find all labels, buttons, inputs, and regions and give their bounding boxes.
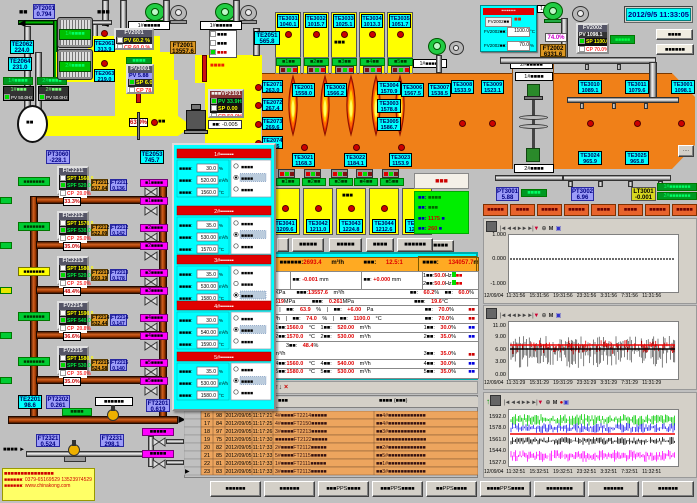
svg-text:22: 22 (204, 461, 210, 467)
svg-text:%: % (219, 166, 223, 171)
svg-text:■■■■: ■■■■ (241, 368, 253, 374)
svg-text:3#■■■■FT2113■■■■■: 3#■■■■FT2113■■■■■ (275, 469, 326, 475)
svg-text:540.00: 540.00 (201, 330, 217, 336)
svg-text:%: % (219, 369, 223, 374)
svg-text:35.0: 35.0 (206, 272, 216, 278)
svg-text:■■■■: ■■■■ (241, 271, 253, 277)
svg-text:2012/09/05: 2012/09/05 (226, 429, 252, 435)
svg-text:98: 98 (216, 413, 222, 419)
svg-text:°C: °C (219, 190, 225, 195)
svg-text:■■■■: ■■■■ (241, 317, 253, 323)
svg-text:■■■■:: ■■■■: (179, 381, 192, 387)
svg-text:1590.0: 1590.0 (201, 342, 217, 348)
svg-text:11:17:21: 11:17:21 (253, 413, 273, 419)
svg-text:11:17:33: 11:17:33 (253, 461, 273, 467)
svg-text:■■■■: ■■■■ (241, 328, 253, 334)
svg-text:■■5#■■■■■■■■■■■■: ■■5#■■■■■■■■■■■■ (376, 453, 426, 459)
svg-text:2012/09/05: 2012/09/05 (226, 445, 252, 451)
svg-text:■■1#■■■■■■■■■■■■: ■■1#■■■■■■■■■■■■ (376, 461, 426, 467)
svg-text:3#▪▪▪▪▪▪▪: 3#▪▪▪▪▪▪▪ (214, 258, 234, 264)
svg-text:530.00: 530.00 (201, 381, 217, 387)
svg-text:84: 84 (216, 421, 222, 427)
svg-text:2012/09/05: 2012/09/05 (226, 461, 252, 467)
svg-text:2#▪▪▪▪▪▪▪: 2#▪▪▪▪▪▪▪ (214, 209, 234, 215)
svg-text:■■■■:: ■■■■: (179, 284, 192, 290)
svg-text:■■■■: ■■■■ (241, 176, 253, 182)
svg-text:30.0: 30.0 (206, 318, 216, 324)
svg-text:1570.0: 1570.0 (201, 247, 217, 253)
svg-text:■■■■:: ■■■■: (179, 223, 192, 229)
svg-text:11:17:33: 11:17:33 (253, 469, 273, 475)
svg-text:3#■■■■FT2213■■■■■: 3#■■■■FT2213■■■■■ (275, 429, 327, 435)
svg-text:11:17:26: 11:17:26 (253, 429, 273, 435)
svg-text:■■■■:: ■■■■: (179, 342, 192, 348)
svg-text:■■3#■■■■■■■■■■■■: ■■3#■■■■■■■■■■■■ (376, 469, 426, 475)
svg-text:°C: °C (219, 296, 225, 301)
svg-text:■■■■:: ■■■■: (179, 330, 192, 336)
svg-text:■■4#■■■■■■■■■■■■: ■■4#■■■■■■■■■■■■ (376, 421, 426, 427)
svg-text:75: 75 (216, 437, 222, 443)
svg-text:■■2#■■■■■■■■■■■■: ■■2#■■■■■■■■■■■■ (376, 445, 426, 451)
svg-text:■■■■:: ■■■■: (179, 178, 192, 184)
svg-text:m³/h: m³/h (219, 235, 228, 240)
svg-text:83: 83 (216, 469, 222, 475)
svg-text:%: % (219, 318, 223, 323)
svg-text:■■■■:: ■■■■: (179, 235, 192, 241)
svg-text:530.00: 530.00 (201, 235, 217, 241)
svg-text:20: 20 (204, 445, 210, 451)
svg-text:■■3#■■■■■■■■■■■■: ■■3#■■■■■■■■■■■■ (376, 429, 426, 435)
svg-text:17: 17 (204, 421, 210, 427)
svg-text:■■■■: ■■■■ (241, 245, 253, 251)
svg-text:1580.0: 1580.0 (201, 393, 217, 399)
svg-text:11:17:33: 11:17:33 (253, 445, 273, 451)
svg-text:■■■■:: ■■■■: (179, 393, 192, 399)
svg-text:■■■■: ■■■■ (241, 188, 253, 194)
svg-text:m³/h: m³/h (219, 178, 228, 183)
svg-text:11:17:30: 11:17:30 (253, 437, 273, 443)
svg-text:97: 97 (216, 429, 222, 435)
svg-text:■■■■:: ■■■■: (179, 318, 192, 324)
svg-text:4#■■■■FT2150■■■■■: 4#■■■■FT2150■■■■■ (275, 421, 327, 427)
svg-text:35.0: 35.0 (206, 223, 216, 229)
svg-text:■■■■: ■■■■ (241, 222, 253, 228)
svg-text:520.00: 520.00 (201, 178, 217, 184)
svg-text:■■■■:: ■■■■: (179, 247, 192, 253)
svg-text:23: 23 (204, 469, 210, 475)
svg-text:30.0: 30.0 (206, 166, 216, 172)
svg-text:21: 21 (204, 453, 210, 459)
svg-text:2012/09/05: 2012/09/05 (226, 469, 252, 475)
svg-text:°C: °C (219, 393, 225, 398)
svg-text:m³/h: m³/h (219, 381, 228, 386)
svg-text:1#▪▪▪▪▪▪▪: 1#▪▪▪▪▪▪▪ (214, 152, 234, 158)
svg-text:■■■■: ■■■■ (241, 379, 253, 385)
svg-text:4#■■■■FT2214■■■■■: 4#■■■■FT2214■■■■■ (275, 413, 327, 419)
svg-text:2012/09/05: 2012/09/05 (226, 437, 252, 443)
svg-text:2012/09/05: 2012/09/05 (226, 453, 252, 459)
svg-text:■■■■■■FT2122■■■■■: ■■■■■■FT2122■■■■■ (275, 437, 327, 443)
svg-text:■■4#■■■■■■■■■■■■: ■■4#■■■■■■■■■■■■ (376, 413, 426, 419)
svg-text:■■■■:: ■■■■: (179, 190, 192, 196)
svg-text:%: % (219, 223, 223, 228)
svg-text:■■■■: ■■■■ (241, 165, 253, 171)
svg-text:°C: °C (219, 247, 225, 252)
svg-text:4#▪▪▪▪▪▪▪: 4#▪▪▪▪▪▪▪ (214, 304, 234, 310)
svg-text:2#■■■■FT2112■■■■■: 2#■■■■FT2112■■■■■ (275, 445, 326, 451)
svg-text:2012/09/05: 2012/09/05 (226, 413, 252, 419)
svg-text:35.0: 35.0 (206, 369, 216, 375)
svg-text:81: 81 (216, 461, 222, 467)
svg-text:■■■■: ■■■■ (241, 391, 253, 397)
svg-text:■■■■:: ■■■■: (179, 272, 192, 278)
svg-text:530.00: 530.00 (201, 284, 217, 290)
svg-text:5#▪▪▪▪▪▪▪: 5#▪▪▪▪▪▪▪ (214, 355, 234, 361)
svg-text:■■■■:: ■■■■: (179, 369, 192, 375)
svg-text:%: % (219, 272, 223, 277)
svg-text:■■■■■■■■■■■■■■■■: ■■■■■■■■■■■■■■■■ (376, 437, 426, 443)
svg-text:■■■■: ■■■■ (241, 282, 253, 288)
svg-text:2012/09/05: 2012/09/05 (226, 421, 252, 427)
svg-text:85: 85 (216, 453, 222, 459)
svg-text:82: 82 (216, 445, 222, 451)
svg-text:▶: ▶ (185, 469, 190, 475)
svg-text:19: 19 (204, 437, 210, 443)
svg-text:16: 16 (204, 413, 210, 419)
svg-text:■■■■: ■■■■ (241, 294, 253, 300)
svg-text:11:17:33: 11:17:33 (253, 453, 273, 459)
svg-text:1560.0: 1560.0 (201, 190, 217, 196)
svg-text:m³/h: m³/h (219, 284, 228, 289)
svg-text:m³/h: m³/h (219, 330, 228, 335)
svg-text:1#■■■■FT2111■■■■■: 1#■■■■FT2111■■■■■ (275, 461, 326, 467)
svg-text:■■■■: ■■■■ (241, 340, 253, 346)
svg-text:°C: °C (219, 342, 225, 347)
svg-text:18: 18 (204, 429, 210, 435)
svg-text:■■■■: ■■■■ (241, 233, 253, 239)
svg-text:11:17:25: 11:17:25 (253, 421, 273, 427)
svg-text:5#■■■■FT2115■■■■■: 5#■■■■FT2115■■■■■ (275, 453, 326, 459)
svg-text:■■■■:: ■■■■: (179, 166, 192, 172)
